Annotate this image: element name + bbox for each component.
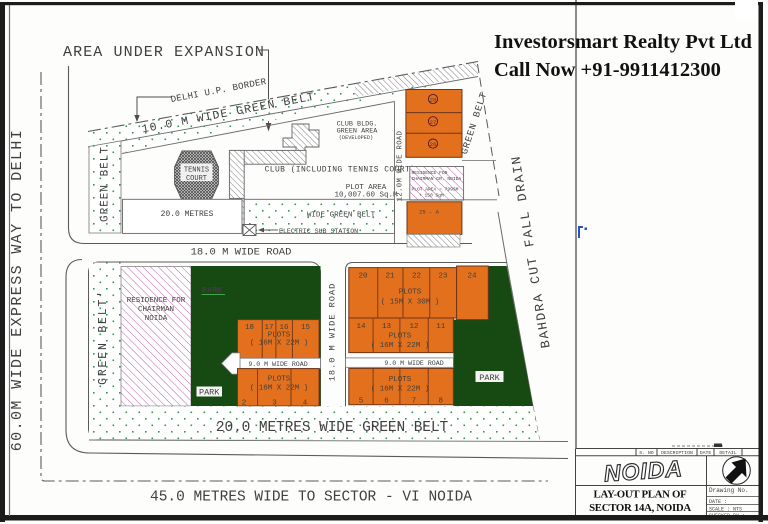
svg-text:PLOT AREA = 799SM: PLOT AREA = 799SM (412, 187, 459, 193)
svg-text:SECTOR 14A, NOIDA: SECTOR 14A, NOIDA (589, 502, 691, 514)
svg-text:NOIDA: NOIDA (145, 315, 168, 323)
svg-text:( 16M X 22M ): ( 16M X 22M ) (371, 342, 430, 350)
svg-text:10,007.60 Sq.M: 10,007.60 Sq.M (334, 192, 398, 200)
svg-text:NOIDA: NOIDA (603, 455, 684, 486)
svg-text:Investorsmart Realty Pvt Ltd: Investorsmart Realty Pvt Ltd (494, 31, 753, 53)
svg-text:ELECTRIC SUB STATION: ELECTRIC SUB STATION (279, 228, 358, 235)
svg-text:9.0 M WIDE ROAD: 9.0 M WIDE ROAD (248, 361, 307, 368)
svg-text:6: 6 (384, 398, 389, 406)
svg-text:CHAIRMAN: CHAIRMAN (138, 306, 174, 314)
svg-text:( 16M X 22M ): ( 16M X 22M ) (250, 385, 309, 393)
svg-text:9.0 M WIDE ROAD: 9.0 M WIDE ROAD (384, 360, 443, 367)
svg-text:Call Now +91-9911412300: Call Now +91-9911412300 (494, 59, 721, 81)
svg-text:WIDE GREEN BELT: WIDE GREEN BELT (307, 212, 376, 220)
svg-text:PARK: PARK (479, 373, 500, 383)
svg-text:21: 21 (385, 273, 395, 281)
svg-text:AREA UNDER EXPANSION: AREA UNDER EXPANSION (63, 44, 265, 61)
svg-text:PLOTS: PLOTS (399, 289, 422, 297)
svg-text:GREEN BELT': GREEN BELT' (97, 289, 110, 385)
svg-text:60.0M WIDE EXPRESS WAY TO DELH: 60.0M WIDE EXPRESS WAY TO DELHI (9, 129, 26, 451)
svg-text:18: 18 (245, 324, 254, 332)
svg-text:18.0 M WIDE ROAD: 18.0 M WIDE ROAD (191, 247, 292, 259)
svg-text:RESIDENCE FOR: RESIDENCE FOR (412, 170, 448, 176)
svg-text:22: 22 (412, 273, 421, 281)
svg-text:14: 14 (356, 323, 366, 331)
svg-text:(DEVELOPED): (DEVELOPED) (339, 135, 373, 141)
svg-text:( 15M X 30M ): ( 15M X 30M ) (381, 299, 440, 307)
svg-text:LAY-OUT PLAN OF: LAY-OUT PLAN OF (594, 489, 688, 501)
svg-text:TENNIS: TENNIS (184, 167, 209, 175)
svg-text:( 16M X 22M ): ( 16M X 22M ) (250, 340, 309, 348)
svg-text:( 16M X 22M ): ( 16M X 22M ) (371, 386, 430, 394)
svg-text:PLOTS: PLOTS (268, 332, 291, 340)
svg-text:DATE: DATE (700, 450, 712, 456)
svg-text:PLOTS: PLOTS (389, 333, 412, 341)
svg-text:11: 11 (436, 323, 446, 331)
svg-text:PARK: PARK (199, 388, 220, 398)
svg-text:28: 28 (430, 97, 437, 104)
svg-text:12: 12 (409, 323, 418, 331)
svg-text:DETAIL: DETAIL (719, 450, 736, 456)
svg-text:+ 150 SqM: + 150 SqM (419, 193, 444, 199)
svg-text:GREEN BELT: GREEN BELT (100, 146, 112, 222)
svg-text:12.0M WIDE ROAD: 12.0M WIDE ROAD (397, 131, 405, 202)
svg-text:26: 26 (430, 141, 437, 148)
svg-text:PLOTS: PLOTS (389, 376, 412, 384)
svg-text:CHAIRMAN GR. NOIDA: CHAIRMAN GR. NOIDA (412, 176, 462, 182)
svg-text:25 - A: 25 - A (419, 209, 440, 216)
svg-text:5: 5 (359, 398, 364, 406)
svg-text:20.0 METRES WIDE GREEN BELT: 20.0 METRES WIDE GREEN BELT (216, 420, 449, 436)
svg-text:24: 24 (467, 273, 477, 281)
svg-text:8: 8 (439, 398, 444, 406)
svg-text:S. NO: S. NO (639, 450, 654, 456)
svg-text:COURT: COURT (186, 175, 207, 183)
svg-text:20: 20 (358, 273, 368, 281)
svg-text:45.0 METRES WIDE TO SECTOR - V: 45.0 METRES WIDE TO SECTOR - VI NOIDA (150, 490, 472, 506)
svg-text:7: 7 (412, 398, 417, 406)
svg-text:27: 27 (430, 119, 437, 126)
svg-text:CLUB (INCLUDING TENNIS COURT): CLUB (INCLUDING TENNIS COURT) (265, 166, 416, 175)
svg-text:18.0 M WIDE ROAD: 18.0 M WIDE ROAD (328, 283, 338, 382)
svg-text:15: 15 (301, 324, 311, 332)
svg-text:23: 23 (438, 273, 448, 281)
svg-text:20.0 METRES: 20.0 METRES (161, 210, 214, 219)
svg-text:Drawing No.: Drawing No. (709, 487, 749, 494)
svg-text:13: 13 (382, 323, 392, 331)
svg-text:RESIDENCE FOR: RESIDENCE FOR (127, 297, 186, 305)
svg-text:PLOTS: PLOTS (268, 376, 291, 384)
